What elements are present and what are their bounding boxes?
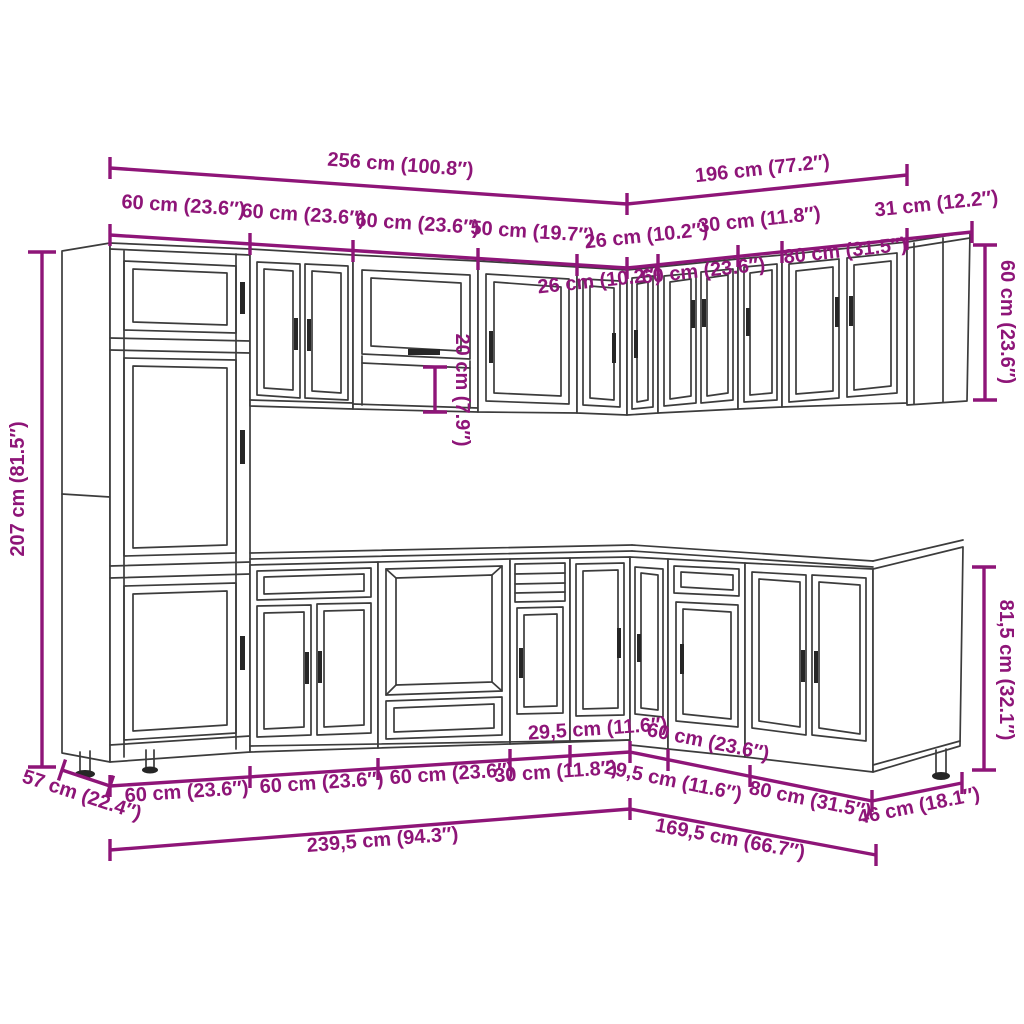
door-handle [801,650,805,682]
dim-label-tall-height: 207 cm (81.5″) [7,421,29,556]
dim-label-base-right-seg-3: 80 cm (31.5″) [747,777,873,823]
door-handle [408,349,440,355]
kitchen-dimension-diagram: 256 cm (100.8″) 196 cm (77.2″) 60 cm (23… [0,0,1024,1024]
dim-label-wall-seg-3: 60 cm (23.6″) [355,209,480,239]
door-handle [305,652,309,684]
door-handle [680,644,684,674]
dim-label-wall-seg-2: 60 cm (23.6″) [241,200,366,230]
door-handle [612,333,616,363]
tall-cabinet-side-panel [62,243,110,762]
door-handle [489,331,493,363]
wall-cabinet-end-31 [907,232,970,405]
door-handle [240,282,245,314]
cabinet-foot [142,767,158,774]
tall-cabinet-front [110,243,250,762]
dim-label-base-right-seg-1: 29,5 cm (11.6″) [603,757,744,806]
door-handle [307,319,311,351]
dim-label-base-right-total: 169,5 cm (66.7″) [653,814,806,864]
dim-label-wall-right-upper-3: 31 cm (12.2″) [874,187,1000,222]
cabinet-foot [932,772,950,780]
door-handle [294,318,298,350]
door-handle [702,299,706,327]
dim-label-base-seg-1: 60 cm (23.6″) [124,777,249,807]
dim-label-base-seg-2: 60 cm (23.6″) [259,768,384,798]
kitchen-line-art [62,232,970,780]
door-handle [617,628,621,658]
door-handle [240,636,245,670]
dim-label-base-height: 81,5 cm (32.1″) [995,600,1017,741]
dim-label-base-left-total: 239,5 cm (94.3″) [306,823,459,857]
dim-label-wall-left-total: 256 cm (100.8″) [327,149,475,182]
dim-label-wall-right-total: 196 cm (77.2″) [694,151,831,187]
dim-label-wall-end-height: 60 cm (23.6″) [996,260,1018,384]
door-handle [849,296,853,326]
door-handle [240,430,245,464]
door-handle [746,308,750,336]
tall-cabinet [62,243,250,762]
dim-label-wall-seg-4: 50 cm (19.7″) [470,217,595,247]
door-handle [814,651,818,683]
dim-label-shelf-gap: 20 cm (7.9″) [451,334,473,447]
door-handle [519,648,523,678]
door-handle [637,634,641,662]
dim-label-wall-seg-1: 60 cm (23.6″) [121,191,246,221]
base-end-side-panel [873,547,963,772]
door-handle [835,297,839,327]
diagram-canvas: 256 cm (100.8″) 196 cm (77.2″) 60 cm (23… [0,0,1024,1024]
base-cabinet-80 [745,563,873,772]
door-handle [318,651,322,683]
door-handle [691,300,695,328]
door-handle [634,330,638,358]
base-cabinet-60-oven-open [378,559,510,748]
dim-label-wall-right-upper-1: 26 cm (10.2″) [584,219,710,254]
dim-label-wall-right-upper-2: 30 cm (11.8″) [697,203,822,238]
